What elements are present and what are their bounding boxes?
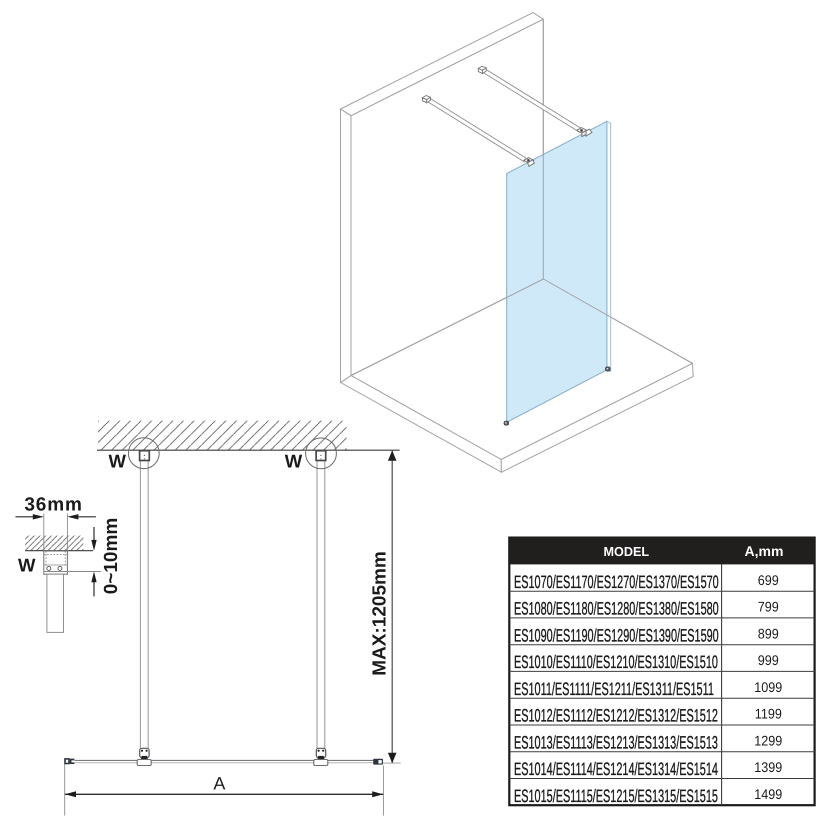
svg-text:ES1070/ES1170/ES1270/ES1370/ES: ES1070/ES1170/ES1270/ES1370/ES1570: [514, 572, 719, 592]
svg-text:W: W: [285, 451, 303, 472]
svg-text:999: 999: [758, 652, 779, 668]
svg-text:1499: 1499: [754, 786, 782, 802]
svg-text:A: A: [213, 774, 225, 794]
svg-text:799: 799: [758, 599, 779, 615]
svg-text:ES1090/ES1190/ES1290/ES1390/ES: ES1090/ES1190/ES1290/ES1390/ES1590: [514, 625, 719, 645]
svg-text:0~10mm: 0~10mm: [101, 518, 122, 595]
svg-text:ES1013/ES1113/ES1213/ES1313/ES: ES1013/ES1113/ES1213/ES1313/ES1513: [514, 732, 718, 752]
svg-text:1399: 1399: [754, 759, 782, 775]
svg-text:MODEL: MODEL: [604, 544, 650, 559]
svg-text:W: W: [18, 554, 36, 575]
svg-text:1099: 1099: [754, 679, 782, 695]
svg-text:1199: 1199: [755, 706, 782, 722]
svg-text:ES1014/ES1114/ES1214/ES1314/ES: ES1014/ES1114/ES1214/ES1314/ES1514: [514, 759, 718, 779]
svg-text:A,mm: A,mm: [745, 543, 784, 559]
svg-text:ES1012/ES1112/ES1212/ES1312/ES: ES1012/ES1112/ES1212/ES1312/ES1512: [514, 706, 718, 726]
svg-text:MAX:1205mm: MAX:1205mm: [369, 551, 390, 676]
svg-text:ES1080/ES1180/ES1280/ES1380/ES: ES1080/ES1180/ES1280/ES1380/ES1580: [514, 599, 719, 619]
svg-text:ES1015/ES1115/ES1215/ES1315/ES: ES1015/ES1115/ES1215/ES1315/ES1515: [514, 786, 718, 806]
svg-text:ES1011/ES1111/ES1211/ES1311/ES: ES1011/ES1111/ES1211/ES1311/ES1511: [514, 679, 714, 699]
svg-text:1299: 1299: [754, 732, 782, 748]
svg-text:ES1010/ES1110/ES1210/ES1310/ES: ES1010/ES1110/ES1210/ES1310/ES1510: [514, 652, 718, 672]
svg-text:899: 899: [758, 625, 779, 641]
svg-text:36mm: 36mm: [24, 495, 83, 516]
svg-text:699: 699: [758, 572, 779, 588]
svg-text:W: W: [109, 451, 127, 472]
